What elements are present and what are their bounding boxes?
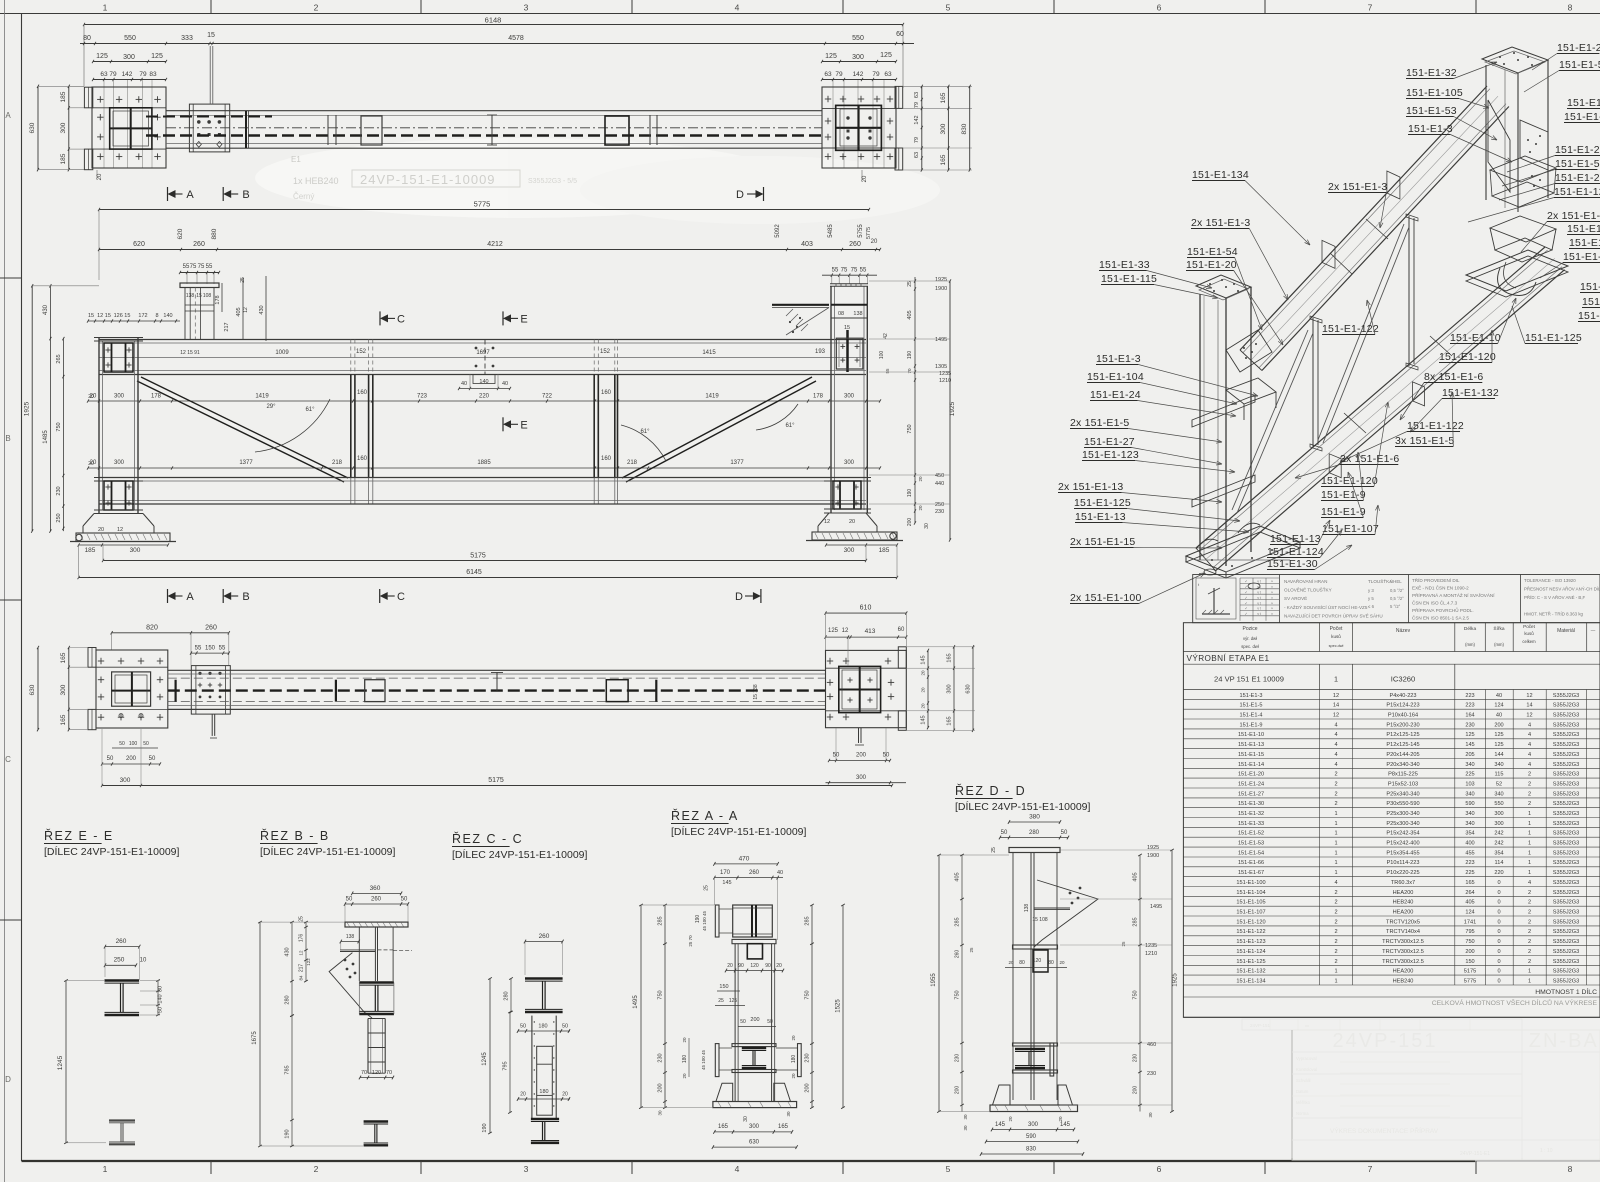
svg-text:151-E1: 151-E1 <box>1578 310 1600 322</box>
svg-text:84: 84 <box>299 975 304 981</box>
svg-text:1: 1 <box>1528 870 1531 876</box>
svg-text:1697: 1697 <box>476 350 490 356</box>
svg-text:8: 8 <box>1568 1164 1573 1174</box>
svg-text:151-E1-53: 151-E1-53 <box>1238 841 1264 847</box>
svg-text:2: 2 <box>1528 781 1531 787</box>
svg-text:200: 200 <box>658 1083 664 1092</box>
svg-text:223: 223 <box>1465 860 1474 866</box>
svg-text:E: E <box>520 313 527 325</box>
svg-text:750: 750 <box>56 422 62 431</box>
svg-text:1525: 1525 <box>836 999 842 1013</box>
svg-text:12: 12 <box>1526 713 1532 719</box>
svg-text:144: 144 <box>1494 752 1503 758</box>
svg-text:190: 190 <box>695 915 701 924</box>
svg-text:1: 1 <box>1334 811 1337 817</box>
svg-text:HEA200: HEA200 <box>1393 890 1414 896</box>
svg-text:138: 138 <box>346 934 355 940</box>
svg-text:90: 90 <box>738 963 744 969</box>
svg-text:590: 590 <box>1465 801 1474 807</box>
svg-text:ÚHEL: ÚHEL <box>1390 579 1402 584</box>
svg-text:SV AROVÉ: SV AROVÉ <box>1284 595 1307 601</box>
svg-text:125: 125 <box>151 53 163 60</box>
svg-text:≤ 6: ≤ 6 <box>1368 604 1375 609</box>
svg-text:15: 15 <box>196 293 202 299</box>
svg-text:E: E <box>520 419 527 431</box>
svg-text:250: 250 <box>56 513 62 522</box>
svg-text:P15x242-354: P15x242-354 <box>1386 831 1419 837</box>
svg-text:45 100 45: 45 100 45 <box>702 910 707 931</box>
svg-text:280: 280 <box>504 991 510 1000</box>
svg-text:610: 610 <box>860 605 872 612</box>
svg-text:6145: 6145 <box>466 569 482 576</box>
svg-text:151-E1-13: 151-E1-13 <box>1075 511 1126 523</box>
svg-text:75: 75 <box>198 264 205 270</box>
svg-text:6: 6 <box>1157 3 1162 13</box>
svg-text:B: B <box>242 189 249 201</box>
svg-text:12 15 91: 12 15 91 <box>180 350 200 356</box>
svg-text:5485: 5485 <box>828 224 834 238</box>
svg-text:151-E1-1: 151-E1-1 <box>1563 251 1600 263</box>
svg-text:50: 50 <box>149 756 156 762</box>
svg-text:220: 220 <box>479 394 490 400</box>
svg-text:151-E1-30: 151-E1-30 <box>1267 558 1318 570</box>
svg-text:1: 1 <box>1528 860 1531 866</box>
svg-text:300: 300 <box>60 684 67 695</box>
svg-text:4: 4 <box>1334 752 1337 758</box>
svg-text:×: × <box>1271 591 1273 595</box>
svg-text:2: 2 <box>1528 900 1531 906</box>
svg-text:180: 180 <box>538 1024 547 1030</box>
svg-text:HEA200: HEA200 <box>1393 910 1414 916</box>
svg-text:S355J2G3 - 5/5: S355J2G3 - 5/5 <box>528 178 577 185</box>
svg-text:12: 12 <box>1526 693 1532 699</box>
svg-text:55: 55 <box>219 646 226 652</box>
svg-text:151-E1-27: 151-E1-27 <box>1084 436 1135 448</box>
svg-text:IC3260: IC3260 <box>1391 675 1416 684</box>
svg-text:590: 590 <box>1026 1134 1037 1140</box>
svg-text:Šířka: Šířka <box>1493 625 1505 632</box>
svg-text:1: 1 <box>1334 870 1337 876</box>
svg-text:30: 30 <box>1148 1112 1153 1118</box>
svg-text:VÝROBNÍ ETAPA E1: VÝROBNÍ ETAPA E1 <box>1187 653 1270 663</box>
svg-text:ŘEZ A - A: ŘEZ A - A <box>671 808 739 823</box>
svg-text:164: 164 <box>1465 713 1474 719</box>
svg-text:151-E1-132: 151-E1-132 <box>1236 969 1265 975</box>
svg-text:1009: 1009 <box>275 350 289 356</box>
svg-text:75: 75 <box>841 268 848 274</box>
svg-text:✓: ✓ <box>1245 607 1248 611</box>
svg-text:151-E1-15: 151-E1-15 <box>1238 752 1264 758</box>
svg-text:70: 70 <box>907 368 912 374</box>
svg-text:413: 413 <box>865 628 876 635</box>
svg-text:2: 2 <box>314 1164 319 1174</box>
svg-text:750: 750 <box>1465 939 1474 945</box>
svg-text:114: 114 <box>1495 860 1504 866</box>
svg-text:80: 80 <box>83 35 91 42</box>
svg-text:1900: 1900 <box>1147 853 1159 859</box>
svg-text:✓: ✓ <box>1245 580 1248 584</box>
svg-text:380: 380 <box>1029 814 1040 821</box>
svg-text:125: 125 <box>825 53 837 60</box>
svg-text:5: 5 <box>946 3 951 13</box>
svg-text:180: 180 <box>791 1055 797 1064</box>
svg-text:180: 180 <box>539 1089 548 1095</box>
svg-text:455: 455 <box>1465 850 1474 856</box>
svg-text:50: 50 <box>883 753 890 759</box>
svg-text:S355J2G3: S355J2G3 <box>1553 732 1579 738</box>
svg-text:217: 217 <box>299 964 305 973</box>
svg-text:79: 79 <box>835 71 843 78</box>
svg-text:50: 50 <box>562 1024 568 1030</box>
svg-text:2x 151-E1-15: 2x 151-E1-15 <box>1070 536 1135 548</box>
svg-text:285: 285 <box>955 917 961 926</box>
svg-text:151-E1-32: 151-E1-32 <box>1406 67 1457 79</box>
svg-text:S355J2G3: S355J2G3 <box>1553 841 1579 847</box>
svg-text:125: 125 <box>1494 732 1503 738</box>
svg-text:4: 4 <box>1528 880 1531 886</box>
svg-text:EXĚ - ND1 ČSN EN 1090-2: EXĚ - ND1 ČSN EN 1090-2 <box>1412 584 1469 591</box>
svg-text:kusů: kusů <box>1331 633 1341 639</box>
svg-text:20: 20 <box>1059 960 1065 965</box>
svg-text:360: 360 <box>370 885 381 892</box>
svg-text:5 °/2°: 5 °/2° <box>1390 604 1401 609</box>
svg-text:230: 230 <box>935 509 944 515</box>
svg-text:2: 2 <box>314 3 319 13</box>
svg-text:S355J2G3: S355J2G3 <box>1553 890 1579 896</box>
svg-text:2: 2 <box>1528 919 1531 925</box>
svg-text:14: 14 <box>1333 703 1339 709</box>
svg-text:40: 40 <box>777 870 783 876</box>
svg-text:4: 4 <box>1334 880 1337 886</box>
svg-text:0: 0 <box>1497 978 1500 984</box>
svg-text:430: 430 <box>43 304 49 315</box>
svg-text:160: 160 <box>601 390 612 396</box>
svg-text:4: 4 <box>1334 742 1337 748</box>
svg-text:30: 30 <box>963 1125 968 1131</box>
svg-text:151-E1-24: 151-E1-24 <box>1238 781 1264 787</box>
svg-text:15 108: 15 108 <box>1032 917 1048 923</box>
svg-text:P12x125-125: P12x125-125 <box>1386 732 1419 738</box>
svg-text:285: 285 <box>805 916 811 925</box>
svg-text:[DÍLEC 24VP-151-E1-10009]: [DÍLEC 24VP-151-E1-10009] <box>260 845 395 858</box>
svg-text:190: 190 <box>285 1129 291 1138</box>
svg-text:230: 230 <box>1133 1054 1139 1063</box>
svg-text:260: 260 <box>193 241 205 248</box>
svg-text:15: 15 <box>207 32 215 39</box>
svg-text:200: 200 <box>856 753 867 759</box>
svg-text:180: 180 <box>682 1055 688 1064</box>
svg-text:TŘÍD PROVEDENÍ DIL: TŘÍD PROVEDENÍ DIL <box>1412 576 1460 583</box>
svg-text:4578: 4578 <box>508 35 524 42</box>
svg-text:151-E1-134: 151-E1-134 <box>1192 169 1249 181</box>
svg-text:50: 50 <box>143 741 149 747</box>
svg-text:✓: ✓ <box>1245 612 1248 616</box>
svg-text:PŘESNOST NESV AŘOV ANÝ-CH DÍL: PŘESNOST NESV AŘOV ANÝ-CH DÍL <box>1524 586 1600 591</box>
svg-text:52: 52 <box>1496 781 1502 787</box>
svg-text:A: A <box>186 189 194 201</box>
svg-text:151-E1-107: 151-E1-107 <box>1236 910 1265 916</box>
svg-text:125: 125 <box>828 628 839 634</box>
svg-text:151-E1-10: 151-E1-10 <box>1238 732 1264 738</box>
svg-text:2: 2 <box>1334 959 1337 965</box>
svg-text:165: 165 <box>1465 880 1474 886</box>
svg-text:151-E: 151-E <box>1580 281 1600 293</box>
svg-text:151-E1-9: 151-E1-9 <box>1239 722 1262 728</box>
svg-text:151-E1-124: 151-E1-124 <box>1236 949 1265 955</box>
svg-text:151-E1-120: 151-E1-120 <box>1439 351 1496 363</box>
svg-text:70: 70 <box>386 1070 392 1076</box>
svg-text:151-E1-: 151-E1- <box>1567 223 1600 235</box>
svg-text:124: 124 <box>1494 703 1503 709</box>
svg-text:celkem: celkem <box>1522 639 1536 644</box>
svg-text:30: 30 <box>786 1111 791 1117</box>
svg-text:1377: 1377 <box>239 460 253 466</box>
svg-text:550: 550 <box>1494 801 1503 807</box>
svg-text:(mm): (mm) <box>1494 642 1504 647</box>
svg-text:151-E1-13: 151-E1-13 <box>1270 533 1321 545</box>
svg-text:20: 20 <box>97 173 103 180</box>
svg-text:×: × <box>1271 601 1273 605</box>
svg-text:820: 820 <box>146 625 158 632</box>
svg-text:176: 176 <box>299 934 305 943</box>
svg-text:405: 405 <box>1465 900 1474 906</box>
svg-text:5092: 5092 <box>775 224 781 238</box>
svg-text:145: 145 <box>921 655 927 664</box>
svg-text:A: A <box>5 111 11 120</box>
svg-text:230: 230 <box>1147 1071 1156 1077</box>
svg-text:S355J2G3: S355J2G3 <box>1553 949 1579 955</box>
svg-text:12: 12 <box>842 628 849 634</box>
svg-text:4: 4 <box>1528 762 1531 768</box>
svg-text:Název: Název <box>1396 628 1411 634</box>
svg-text:300: 300 <box>940 123 947 134</box>
svg-text:1: 1 <box>1528 811 1531 817</box>
svg-text:10: 10 <box>140 958 147 964</box>
svg-text:1: 1 <box>103 1164 108 1174</box>
svg-text:151-E1-66: 151-E1-66 <box>1238 860 1264 866</box>
svg-text:83: 83 <box>149 71 157 78</box>
svg-text:0: 0 <box>1497 949 1500 955</box>
svg-text:S355J2G3: S355J2G3 <box>1553 722 1579 728</box>
svg-text:230: 230 <box>955 1054 961 1063</box>
svg-text:63: 63 <box>914 152 920 158</box>
svg-text:151-E1-24: 151-E1-24 <box>1555 144 1600 156</box>
svg-text:5755: 5755 <box>858 224 864 238</box>
svg-text:185: 185 <box>60 91 67 102</box>
svg-text:1: 1 <box>1334 821 1337 827</box>
svg-text:20: 20 <box>921 670 926 676</box>
svg-text:340: 340 <box>1465 821 1474 827</box>
svg-text:0: 0 <box>1497 959 1500 965</box>
svg-text:1925: 1925 <box>1173 973 1179 987</box>
svg-text:P15x200-230: P15x200-230 <box>1386 722 1419 728</box>
svg-text:630: 630 <box>749 1140 760 1146</box>
svg-text:0: 0 <box>1497 919 1500 925</box>
svg-text:30: 30 <box>924 523 930 529</box>
svg-text:300: 300 <box>1494 821 1503 827</box>
svg-text:2: 2 <box>1334 910 1337 916</box>
svg-text:20: 20 <box>682 1073 687 1079</box>
svg-text:25: 25 <box>1121 941 1126 947</box>
svg-text:P25x300-340: P25x300-340 <box>1386 821 1419 827</box>
svg-text:265: 265 <box>56 354 62 363</box>
svg-text:1210: 1210 <box>939 378 951 384</box>
svg-text:1419: 1419 <box>255 394 269 400</box>
svg-text:230: 230 <box>1465 722 1474 728</box>
svg-text:100: 100 <box>129 741 138 747</box>
svg-text:1: 1 <box>1334 860 1337 866</box>
svg-text:260: 260 <box>749 870 760 876</box>
svg-text:✓: ✓ <box>1245 591 1248 595</box>
svg-text:165: 165 <box>778 1124 789 1130</box>
svg-text:20: 20 <box>791 1073 796 1079</box>
svg-text:151-E1-52: 151-E1-52 <box>1559 59 1600 71</box>
svg-text:30: 30 <box>743 1116 749 1122</box>
svg-text:151-E1-32: 151-E1-32 <box>1238 811 1264 817</box>
svg-text:20: 20 <box>918 505 923 511</box>
svg-text:400: 400 <box>1465 841 1474 847</box>
svg-text:300: 300 <box>844 460 855 466</box>
svg-text:178: 178 <box>215 295 221 304</box>
svg-text:63: 63 <box>100 71 108 78</box>
svg-text:217: 217 <box>224 322 230 331</box>
svg-text:260: 260 <box>371 897 382 903</box>
svg-text:S355J2G3: S355J2G3 <box>1553 831 1579 837</box>
svg-text:151-E1-33: 151-E1-33 <box>1099 259 1150 271</box>
svg-text:151-E1-: 151-E1- <box>1569 237 1600 249</box>
svg-text:2: 2 <box>1334 772 1337 778</box>
svg-text:C: C <box>397 591 405 603</box>
svg-text:2x 151-E1-5: 2x 151-E1-5 <box>1070 417 1129 429</box>
svg-text:3x 151-E1-5: 3x 151-E1-5 <box>1395 435 1454 447</box>
svg-text:P25x340-340: P25x340-340 <box>1386 791 1419 797</box>
svg-text:P20x144-205: P20x144-205 <box>1386 752 1419 758</box>
svg-text:340: 340 <box>1465 762 1474 768</box>
svg-text:[DÍLEC 24VP-151-E1-10009]: [DÍLEC 24VP-151-E1-10009] <box>671 825 806 838</box>
svg-text:8: 8 <box>155 313 158 319</box>
svg-text:20: 20 <box>562 1092 568 1098</box>
svg-text:S355J2G3: S355J2G3 <box>1553 713 1579 719</box>
svg-text:80: 80 <box>1019 960 1025 966</box>
svg-text:100: 100 <box>879 351 885 360</box>
svg-text:450: 450 <box>935 473 944 479</box>
svg-text:79: 79 <box>109 71 117 78</box>
svg-text:1245: 1245 <box>482 1052 488 1066</box>
svg-text:Pozice: Pozice <box>1242 626 1257 632</box>
svg-text:151-E1-104: 151-E1-104 <box>1236 890 1265 896</box>
svg-text:S355J2G3: S355J2G3 <box>1553 801 1579 807</box>
svg-text:4: 4 <box>1528 752 1531 758</box>
svg-text:25: 25 <box>240 277 246 283</box>
svg-text:55: 55 <box>206 264 213 270</box>
svg-text:12: 12 <box>299 950 304 956</box>
svg-text:145: 145 <box>995 1122 1006 1128</box>
svg-text:E1: E1 <box>291 155 301 164</box>
svg-text:1: 1 <box>1334 841 1337 847</box>
svg-text:630: 630 <box>966 684 972 693</box>
svg-text:50: 50 <box>740 1019 746 1025</box>
svg-text:151-E1-125: 151-E1-125 <box>1236 959 1265 965</box>
svg-text:300: 300 <box>844 547 855 554</box>
svg-text:124: 124 <box>1465 910 1474 916</box>
svg-text:P20x340-340: P20x340-340 <box>1386 762 1419 768</box>
svg-text:550: 550 <box>124 35 136 42</box>
svg-text:2: 2 <box>1334 919 1337 925</box>
svg-text:2: 2 <box>1528 772 1531 778</box>
svg-text:165: 165 <box>60 652 67 663</box>
svg-text:300: 300 <box>60 122 67 133</box>
svg-text:120: 120 <box>750 963 759 969</box>
svg-text:151-E1-5: 151-E1-5 <box>1555 158 1600 170</box>
svg-text:300: 300 <box>856 775 867 781</box>
svg-text:D: D <box>735 591 743 603</box>
svg-text:1210: 1210 <box>1145 951 1157 957</box>
svg-text:300: 300 <box>1494 811 1503 817</box>
svg-text:✓: ✓ <box>1245 585 1248 589</box>
svg-text:300: 300 <box>120 777 131 784</box>
svg-text:722: 722 <box>542 394 553 400</box>
svg-text:151-E1-67: 151-E1-67 <box>1238 870 1264 876</box>
svg-text:7: 7 <box>1368 1164 1373 1174</box>
svg-text:142: 142 <box>122 71 133 78</box>
svg-text:PŘÍD: C - S V AŘOV ANÉ - B,F: PŘÍD: C - S V AŘOV ANÉ - B,F <box>1524 595 1586 600</box>
svg-text:103: 103 <box>1465 781 1474 787</box>
svg-text:50: 50 <box>119 741 125 747</box>
svg-text:S355J2G3: S355J2G3 <box>1553 978 1579 984</box>
svg-text:200: 200 <box>955 1086 961 1095</box>
svg-text:795: 795 <box>1465 929 1474 935</box>
svg-text:TOLERANCE - ISO 13920: TOLERANCE - ISO 13920 <box>1524 578 1576 583</box>
svg-text:S355J2G3: S355J2G3 <box>1553 762 1579 768</box>
svg-text:151-E1-: 151-E1- <box>1567 97 1600 109</box>
svg-text:1: 1 <box>1334 675 1338 684</box>
svg-text:ČSN EN ISO ČL.4.7.3: ČSN EN ISO ČL.4.7.3 <box>1412 600 1458 606</box>
svg-text:S355J2G3: S355J2G3 <box>1553 693 1579 699</box>
svg-text:260: 260 <box>116 938 127 945</box>
svg-text:340: 340 <box>1494 762 1503 768</box>
svg-text:126 15: 126 15 <box>114 313 131 319</box>
svg-text:151-E: 151-E <box>1582 296 1600 308</box>
svg-text:264: 264 <box>1465 890 1474 896</box>
svg-text:50: 50 <box>520 1024 526 1030</box>
svg-text:1: 1 <box>1528 821 1531 827</box>
svg-text:S355J2G3: S355J2G3 <box>1553 939 1579 945</box>
svg-text:P15x242-400: P15x242-400 <box>1386 841 1419 847</box>
svg-text:50: 50 <box>401 897 408 903</box>
svg-text:HMOTNOST 1 DÍLC: HMOTNOST 1 DÍLC <box>1535 987 1597 996</box>
svg-text:151-E1-1: 151-E1-1 <box>1564 111 1600 123</box>
svg-text:20: 20 <box>862 175 868 182</box>
svg-text:55: 55 <box>832 268 839 274</box>
svg-text:160: 160 <box>357 456 368 462</box>
svg-text:kusů: kusů <box>1524 631 1534 636</box>
svg-text:3x 151-E1-6: 3x 151-E1-6 <box>1340 453 1399 465</box>
svg-text:1: 1 <box>1528 850 1531 856</box>
svg-text:145: 145 <box>1060 1122 1071 1128</box>
svg-text:20: 20 <box>88 394 94 400</box>
svg-text:160: 160 <box>357 390 368 396</box>
svg-text:620: 620 <box>133 241 145 248</box>
svg-text:P10x114-223: P10x114-223 <box>1387 860 1420 866</box>
svg-text:S355J2G3: S355J2G3 <box>1553 772 1579 778</box>
svg-text:61°: 61° <box>640 429 650 435</box>
svg-text:151-E1-33: 151-E1-33 <box>1238 821 1264 827</box>
svg-text:4: 4 <box>1528 732 1531 738</box>
svg-text:300: 300 <box>123 54 135 61</box>
svg-text:750: 750 <box>1133 990 1139 999</box>
svg-text:8: 8 <box>1568 3 1573 13</box>
svg-text:1235: 1235 <box>1145 943 1157 949</box>
